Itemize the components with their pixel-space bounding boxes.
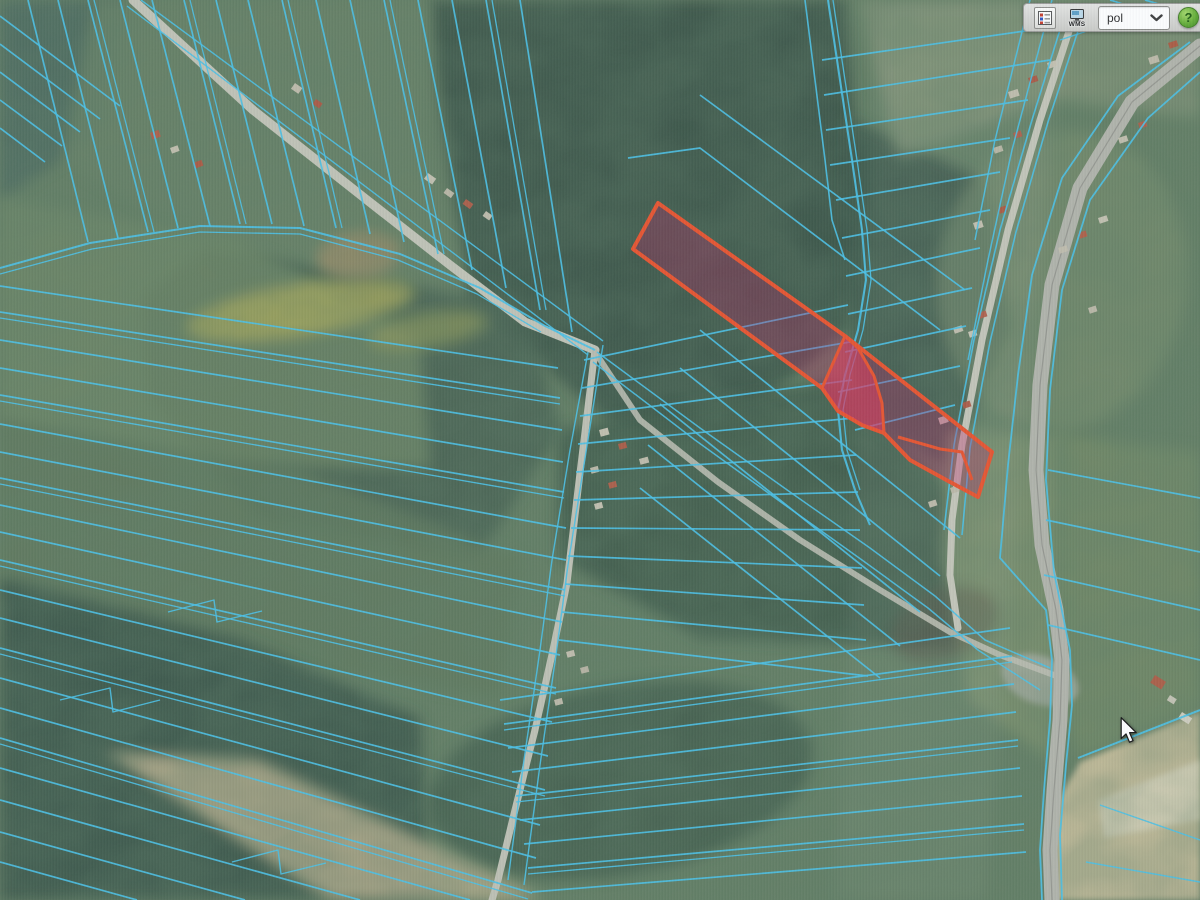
legend-button[interactable] [1034,7,1056,29]
language-select-value: pol [1107,11,1123,25]
wms-button[interactable]: WMS [1064,4,1090,31]
photo-grain [0,0,1200,900]
map-canvas[interactable] [0,0,1200,900]
map-viewer-window: WMS pol ? [0,0,1200,900]
help-button[interactable]: ? [1178,7,1199,28]
wms-button-label: WMS [1069,22,1086,27]
chevron-down-icon [1150,14,1163,22]
wms-icon [1069,9,1085,22]
language-select[interactable]: pol [1098,6,1170,30]
map-toolbar: WMS pol ? [1023,3,1200,32]
legend-icon [1038,11,1052,25]
